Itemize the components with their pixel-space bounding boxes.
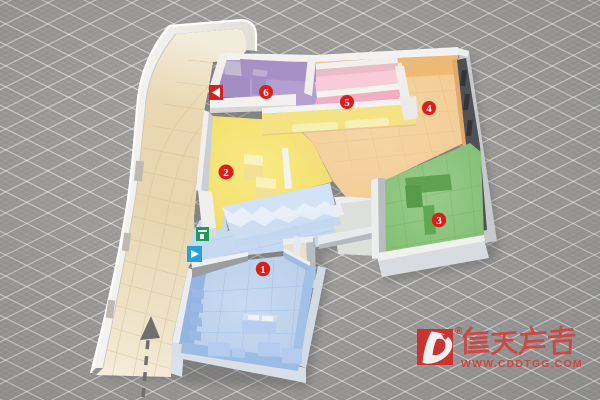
svg-text:WWW.CDDTGG.COM: WWW.CDDTGG.COM [461,358,583,370]
svg-text:1: 1 [260,264,266,276]
svg-text:2: 2 [223,167,229,179]
svg-text:5: 5 [344,97,350,109]
svg-text:6: 6 [263,87,269,99]
svg-text:4: 4 [426,103,432,115]
svg-text:®: ® [455,326,463,337]
svg-text:3: 3 [436,215,442,227]
